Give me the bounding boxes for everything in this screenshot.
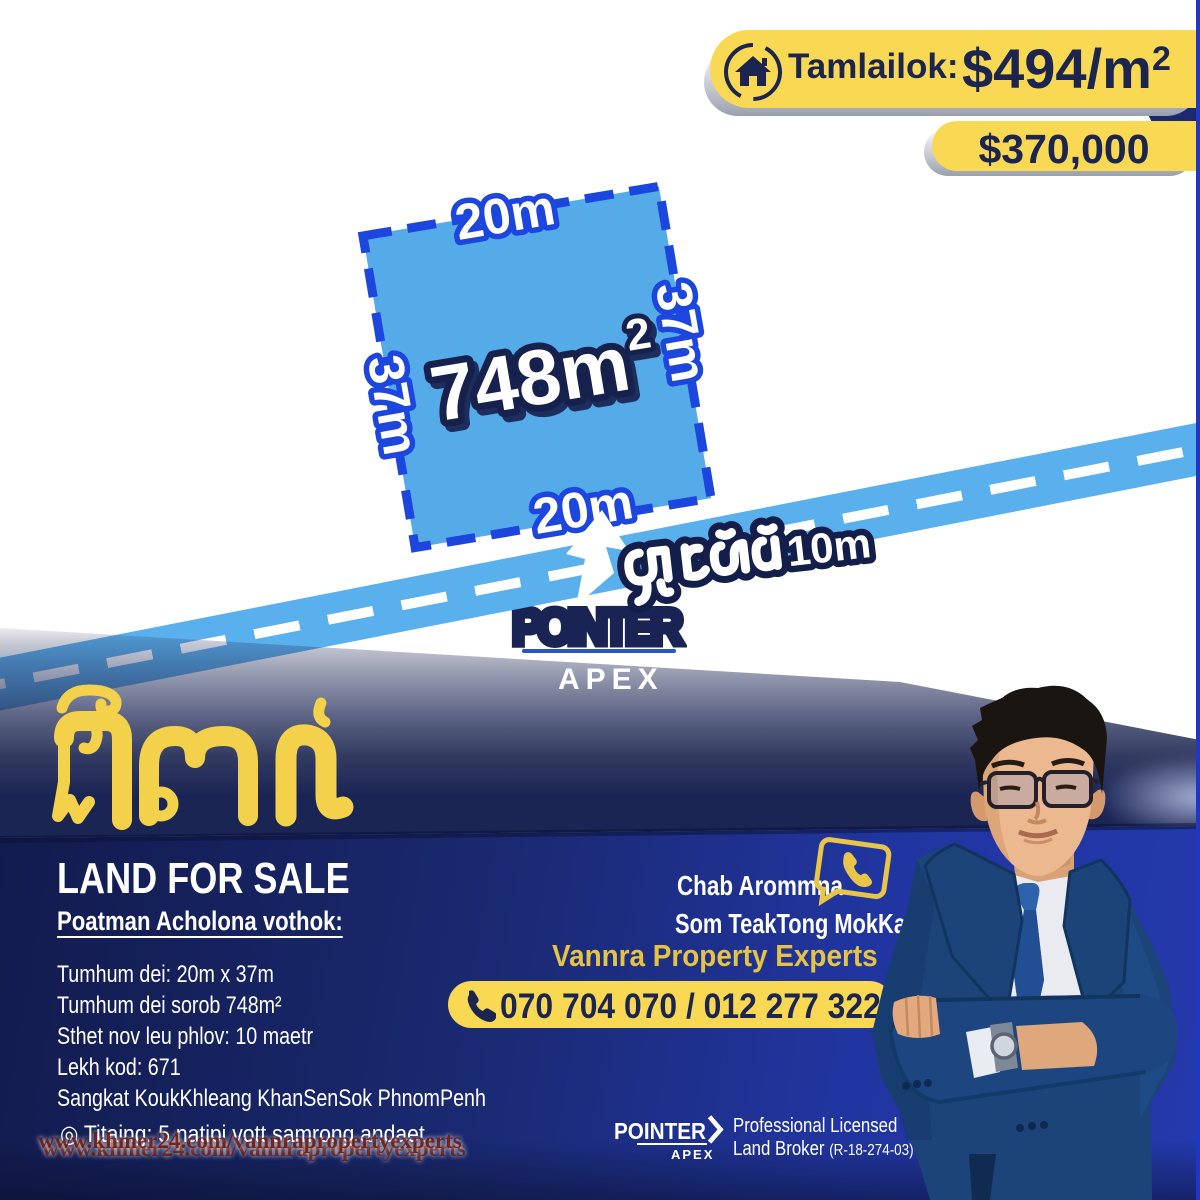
svg-text:10m: 10m <box>784 519 873 575</box>
